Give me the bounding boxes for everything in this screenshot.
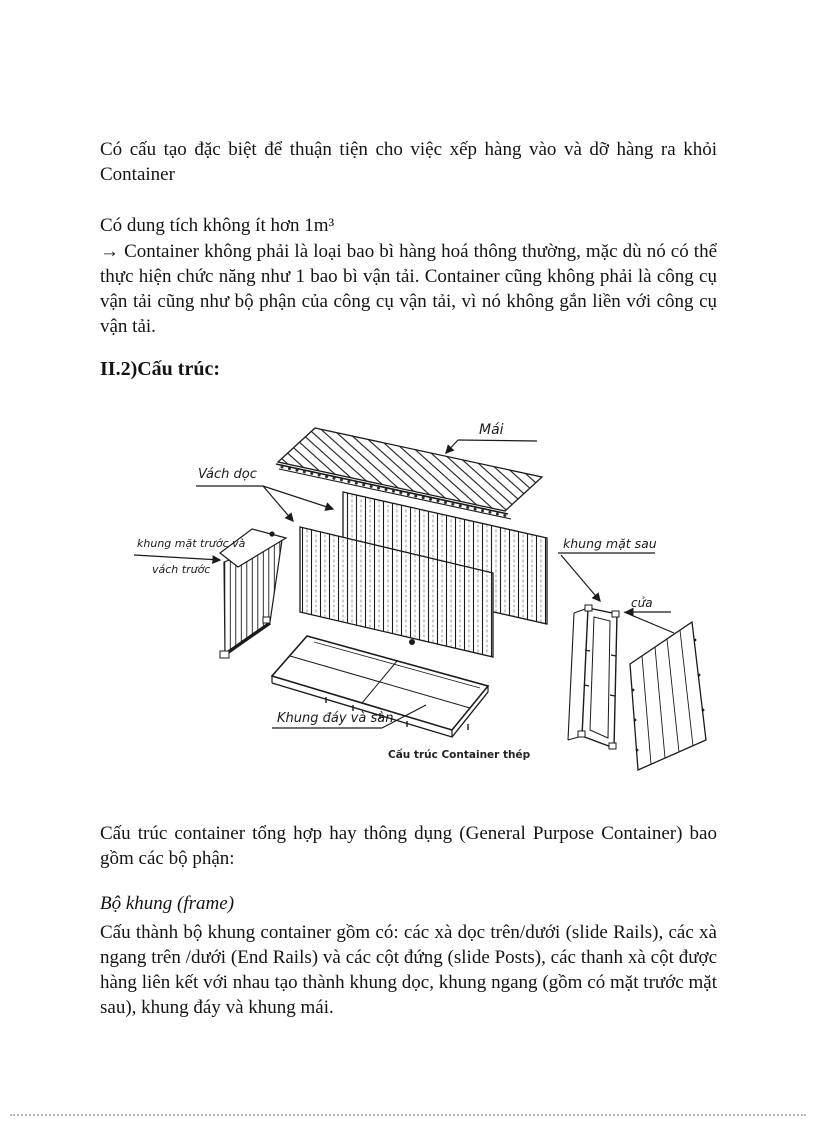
label-rear-frame: khung mặt sau xyxy=(558,536,657,601)
door-label-text: cửa xyxy=(631,596,653,610)
paragraph-capacity: Có dung tích không ít hơn 1m³ xyxy=(100,213,717,238)
roof-label-text: Mái xyxy=(479,422,504,438)
figure-caption: Cấu trúc Container thép xyxy=(388,748,531,761)
label-side-wall: Vách dọc xyxy=(196,467,333,521)
paragraph-general-purpose: Cấu trúc container tổng hợp hay thông dụ… xyxy=(100,821,717,871)
front-frame-label-line2: vách trước xyxy=(152,563,210,576)
label-door: cửa xyxy=(624,596,674,633)
section-heading: II.2)Cấu trúc: xyxy=(100,358,220,381)
paragraph-container-definition: → Container không phải là loại bao bì hà… xyxy=(100,239,717,339)
container-structure-figure: Mái Vách dọc khung mặt trước và vách trư… xyxy=(130,400,730,790)
exploded-container-diagram: Mái Vách dọc khung mặt trước và vách trư… xyxy=(130,400,730,790)
document-page: Có cấu tạo đặc biệt để thuận tiện cho vi… xyxy=(0,0,816,1123)
label-roof: Mái xyxy=(446,422,537,453)
paragraph-frame-description: Cấu thành bộ khung container gồm có: các… xyxy=(100,920,717,1020)
wall-dot xyxy=(409,639,415,645)
bottom-frame-label-text: Khung đáy và sàn xyxy=(277,711,393,726)
side-wall-label-text: Vách dọc xyxy=(198,467,257,482)
front-frame-label-line1: khung mặt trước và xyxy=(137,537,246,550)
frame-subheading: Bộ khung (frame) xyxy=(100,893,234,915)
page-bottom-dotted-line xyxy=(10,1114,806,1116)
paragraph-structure-feature: Có cấu tạo đặc biệt để thuận tiện cho vi… xyxy=(100,137,717,187)
door-panel xyxy=(630,622,706,770)
roof-panel xyxy=(276,428,542,519)
rear-frame-label-text: khung mặt sau xyxy=(563,536,657,551)
rear-end-frame xyxy=(568,605,619,749)
